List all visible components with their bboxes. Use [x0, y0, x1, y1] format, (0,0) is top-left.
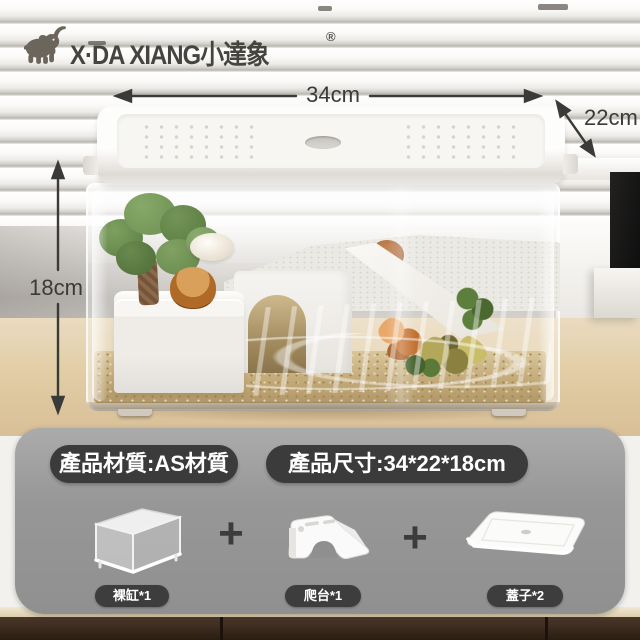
brand-name: X·DA XIANG小達象: [70, 33, 269, 72]
item-label-lids: 蓋子*2: [487, 585, 563, 607]
tank-foot: [492, 409, 526, 416]
cabinet-front: [0, 617, 640, 640]
lid-clip: [83, 156, 98, 175]
glass-highlight: [538, 189, 554, 401]
monitor-stand: [594, 268, 640, 318]
lid-vent-holes: [139, 122, 257, 162]
planter-basin: [114, 299, 244, 393]
elephant-icon: [18, 20, 70, 68]
blind-smudge: [318, 6, 332, 11]
drawer-seam: [545, 617, 548, 640]
plus-sign: +: [395, 516, 435, 560]
info-panel: 產品材質:AS材質 產品尺寸:34*22*18cm + + 裸缸*1: [15, 428, 625, 614]
glass-highlight: [386, 183, 416, 403]
material-badge: 產品材質:AS材質: [50, 445, 238, 483]
bare-tank-figure: [80, 502, 192, 578]
height-dimension-label: 18cm: [25, 275, 87, 301]
lid-figure: [452, 504, 594, 562]
lid-vent-holes: [401, 122, 519, 162]
drawer-seam: [220, 617, 223, 640]
product-image: X·DA XIANG小達象 ®: [0, 0, 640, 640]
lid-clip: [563, 154, 578, 174]
registered-trademark-icon: ®: [326, 29, 336, 44]
item-label-climbing-platform: 爬台*1: [285, 585, 361, 607]
lid-inset: [117, 114, 545, 168]
depth-dimension-label: 22cm: [584, 105, 640, 131]
tank-base-rim: [86, 402, 560, 411]
item-label-bare-tank: 裸缸*1: [95, 585, 169, 607]
tank-foot: [118, 409, 152, 416]
tank-photo: [86, 183, 560, 411]
white-shell: [190, 233, 234, 261]
blind-smudge: [538, 4, 568, 10]
lid-feeding-hole: [305, 136, 341, 149]
glass-highlight: [92, 189, 108, 401]
plus-sign: +: [211, 512, 251, 556]
hermit-crab: [170, 267, 216, 309]
width-dimension-label: 34cm: [298, 82, 368, 108]
size-badge: 產品尺寸:34*22*18cm: [266, 445, 528, 483]
climbing-platform-figure: [277, 512, 383, 568]
tank-lid: [97, 106, 565, 184]
